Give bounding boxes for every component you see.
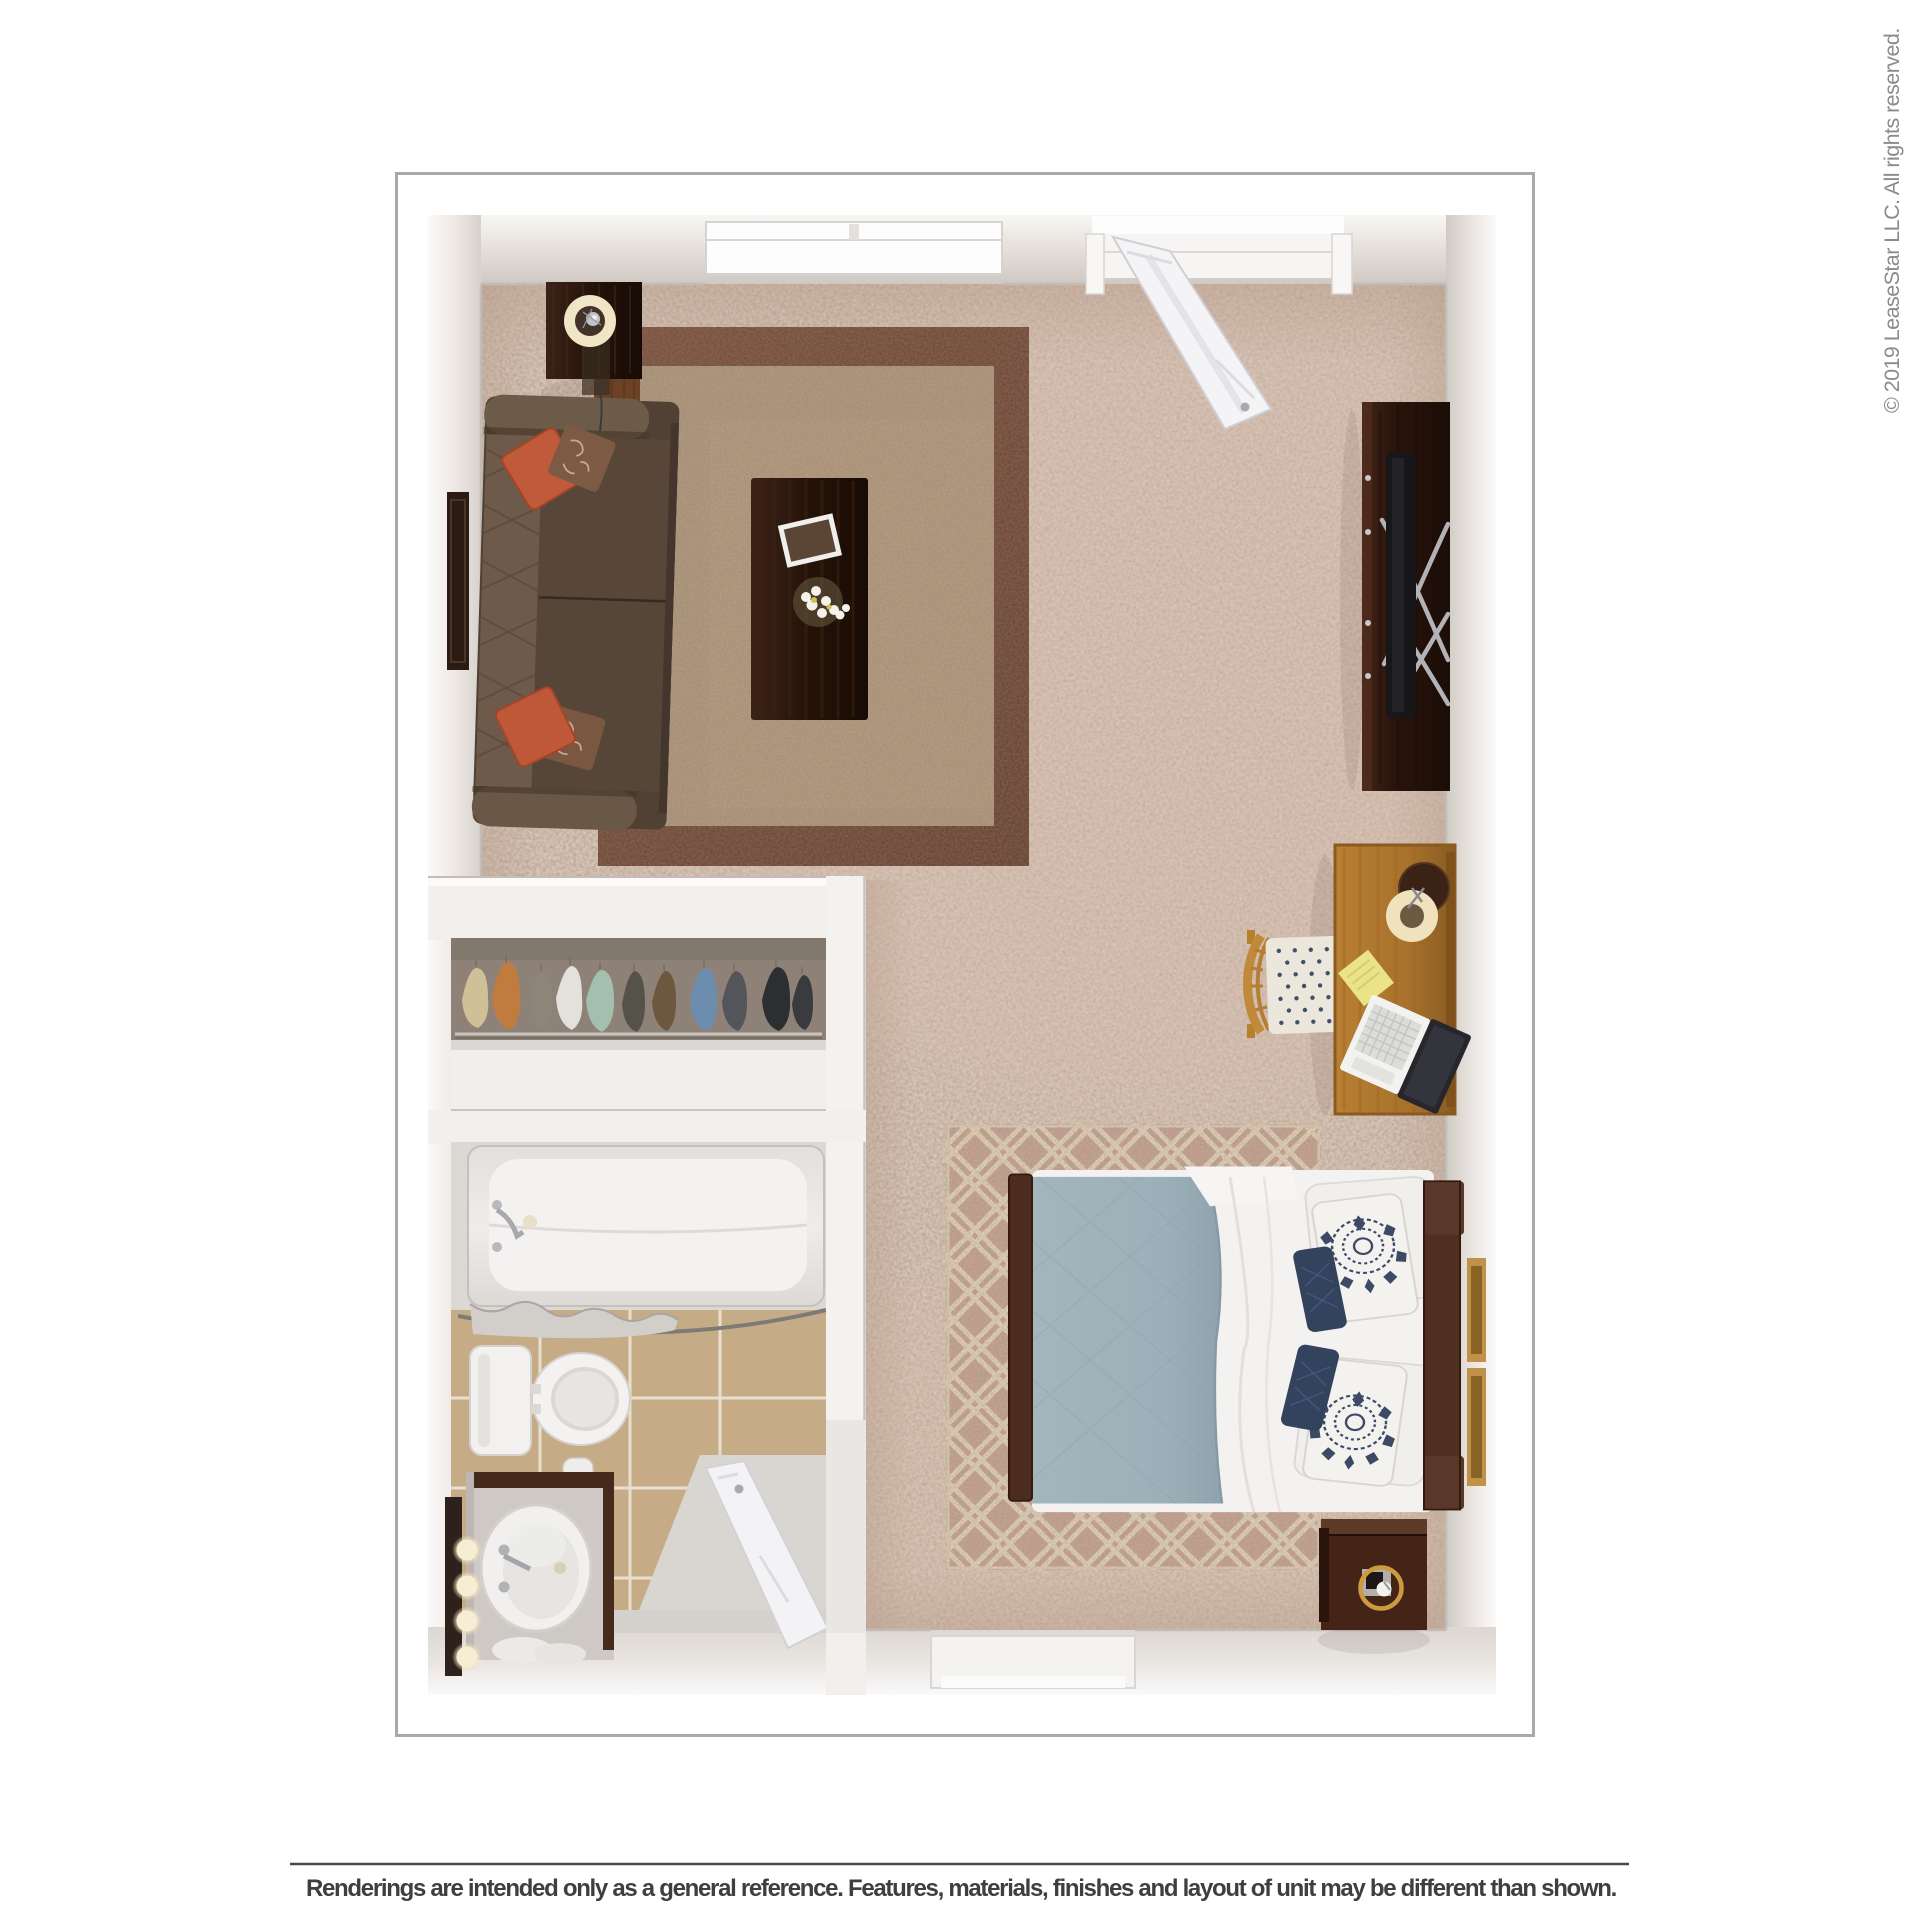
svg-text:Renderings are intended only a: Renderings are intended only as a genera… xyxy=(306,1875,1617,1902)
svg-text:© 2019 LeaseStar LLC. All righ: © 2019 LeaseStar LLC. All rights reserve… xyxy=(1880,28,1904,413)
